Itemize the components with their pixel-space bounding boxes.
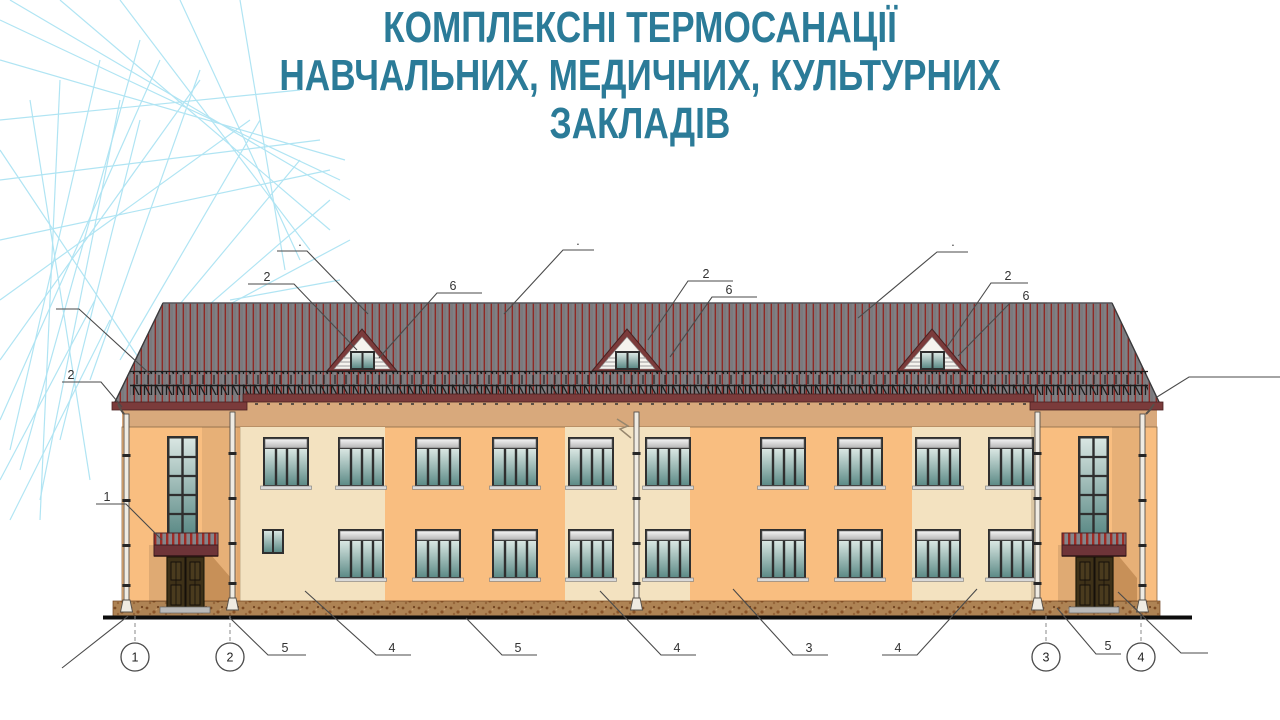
window [913, 437, 964, 489]
axis-label-1: 1 [132, 651, 139, 665]
callout-label: 6 [726, 283, 733, 297]
window [336, 437, 387, 489]
window [261, 437, 312, 489]
callout-label: 6 [450, 279, 457, 293]
windows-upper [261, 437, 1037, 489]
window [835, 529, 886, 581]
callout-label: 1 [104, 490, 111, 504]
window [986, 437, 1037, 489]
window [643, 437, 694, 489]
callout-label: 4 [895, 641, 902, 655]
small-window [262, 529, 284, 554]
callout-label: 2 [68, 368, 75, 382]
window [643, 529, 694, 581]
frieze-band [122, 402, 1157, 427]
presentation-slide: КОМПЛЕКСНІ ТЕРМОСАНАЦІЇ НАВЧАЛЬНИХ, МЕДИ… [0, 0, 1280, 720]
windows-lower [262, 529, 1037, 581]
callout-label: · [576, 237, 580, 251]
window [835, 437, 886, 489]
callout-label: 4 [389, 641, 396, 655]
window [413, 529, 464, 581]
callout-label: 3 [806, 641, 813, 655]
stairwell-window [1078, 436, 1109, 536]
callout-label: 2 [703, 267, 710, 281]
callout-label: · [298, 238, 302, 252]
door-step [160, 607, 210, 613]
entrance-canopy [154, 533, 218, 556]
axis-markers: 1 2 3 4 [121, 616, 1155, 671]
entrance-door [167, 557, 204, 611]
window [490, 529, 541, 581]
window [913, 529, 964, 581]
window [490, 437, 541, 489]
building-elevation-drawing: 2 1 · 2 6 · 2 6 · 2 6 5 4 5 4 3 4 5 [0, 0, 1280, 720]
callout-label: · [951, 238, 955, 252]
callout-label: 6 [1023, 289, 1030, 303]
entrance-door [1076, 557, 1113, 611]
snow-guard-band [130, 371, 1148, 395]
door-step [1069, 607, 1119, 613]
window [986, 529, 1037, 581]
callout-label: 2 [1005, 269, 1012, 283]
window [413, 437, 464, 489]
entrance-canopy [1062, 533, 1126, 556]
stairwell-window [167, 436, 198, 536]
axis-label-4: 4 [1138, 651, 1145, 665]
callout-label: 5 [515, 641, 522, 655]
ground-line [103, 616, 1192, 620]
window [566, 529, 617, 581]
callout-label: 5 [282, 641, 289, 655]
window [336, 529, 387, 581]
axis-label-3: 3 [1043, 651, 1050, 665]
callout-label: 5 [1105, 639, 1112, 653]
window [758, 529, 809, 581]
callout-label: 4 [674, 641, 681, 655]
callout-label: 2 [264, 270, 271, 284]
axis-label-2: 2 [227, 651, 234, 665]
window [758, 437, 809, 489]
window [566, 437, 617, 489]
